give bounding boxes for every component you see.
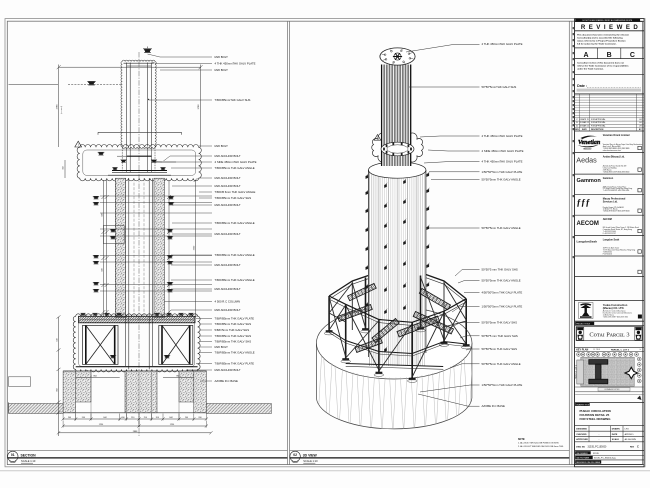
svg-text:2. ALL FILLET WELDED SHOULD BE: 2. ALL FILLET WELDED SHOULD BE 6mm THK. (518, 445, 564, 448)
svg-text:M20 ANCHOR BOLT: M20 ANCHOR BOLT (215, 368, 241, 372)
svg-text:250: 250 (131, 417, 134, 419)
svg-text:350: 350 (63, 166, 65, 169)
svg-text:A: A (583, 52, 588, 59)
svg-text:1/50*50*5mm THK GALV PLATE: 1/50*50*5mm THK GALV PLATE (482, 383, 523, 387)
svg-text:DESCRIPTION: DESCRIPTION (591, 129, 604, 131)
svg-text:T +852 3922 9000: T +852 3922 9000 (603, 231, 616, 233)
svg-text:200: 200 (198, 417, 201, 419)
svg-text:T/B/F/B5mm THK GALV SHS: T/B/F/B5mm THK GALV SHS (215, 322, 252, 326)
svg-text:T/B/F/B5mm THK GALV SHS: T/B/F/B5mm THK GALV SHS (215, 196, 252, 200)
svg-text:4 SIDE 450mmTHK GALV PLATE: 4 SIDE 450mmTHK GALV PLATE (482, 149, 524, 153)
svg-text:26 MAR 15: 26 MAR 15 (580, 121, 589, 124)
svg-text:MACAO: MACAO (584, 147, 592, 150)
svg-text:21/F, Macau: 21/F, Macau (603, 170, 612, 172)
svg-text:relieve the Trade Contracto: relieve the Trade Contractor of its resp… (577, 65, 629, 68)
svg-text:AECOM: AECOM (577, 221, 599, 227)
svg-text:530: 530 (56, 338, 58, 341)
svg-text:M20 ANCHOR BOLT: M20 ANCHOR BOLT (215, 154, 241, 158)
svg-text:4 SIDE 450mmTHK GALV PLATE: 4 SIDE 450mmTHK GALV PLATE (215, 160, 257, 164)
svg-text:1786: 1786 (198, 104, 200, 110)
svg-text:T 2830 3500: T 2830 3500 (603, 251, 612, 253)
svg-text:18 MAR 15: 18 MAR 15 (580, 124, 589, 127)
svg-text:Date :: Date : (577, 84, 587, 88)
svg-text:F 2576 0416: F 2576 0416 (603, 253, 612, 255)
svg-text:4 THK 450mmTHK GALV PLATE: 4 THK 450mmTHK GALV PLATE (215, 62, 256, 66)
svg-text:CAD NUMBER: CAD NUMBER (576, 452, 588, 455)
svg-text:5/B/F/5mm THK GALV SHS: 5/B/F/5mm THK GALV SHS (215, 328, 250, 332)
svg-text:3D VIEW: 3D VIEW (303, 454, 318, 458)
svg-text:T/B/F/B6mm THK GALV ANGLE: T/B/F/B6mm THK GALV ANGLE (215, 278, 255, 282)
svg-text:50*50*5mmTHK GALV SHS: 50*50*5mmTHK GALV SHS (482, 85, 517, 89)
svg-text:T/B/F/B5mm THK GALV SHS: T/B/F/B5mm THK GALV SHS (215, 340, 252, 344)
svg-text:Gammon: Gammon (603, 177, 614, 180)
svg-text:DESIGNED: DESIGNED (576, 429, 587, 431)
svg-text:M20 BOLT: M20 BOLT (215, 345, 229, 349)
svg-text:250: 250 (144, 417, 147, 419)
svg-text:FOR APPROVAL: FOR APPROVAL (591, 121, 605, 124)
svg-text:01: 01 (11, 453, 15, 457)
svg-text:C: C (637, 445, 639, 449)
svg-text:LangdonSeah: LangdonSeah (577, 240, 598, 244)
svg-text:50*50*5mm THK GALV ANGLE: 50*50*5mm THK GALV ANGLE (482, 178, 521, 182)
svg-text:T/B/F/B5mm THK GALV ANGLE: T/B/F/B5mm THK GALV ANGLE (215, 351, 255, 355)
svg-text:4 THK 450mmTHK GALV PLATE: 4 THK 450mmTHK GALV PLATE (482, 160, 523, 164)
svg-text:50*50*5mm THK GALV SHS: 50*50*5mm THK GALV SHS (482, 347, 518, 351)
svg-text:DRAWING TITLE: DRAWING TITLE (576, 404, 590, 407)
svg-text:T/B/F/B 6mm THK GALV ANGLE: T/B/F/B 6mm THK GALV ANGLE (215, 190, 256, 194)
svg-text:status referred to in Proj: status referred to in Project Procedure … (577, 39, 626, 42)
svg-text:M20 ANCHOR BOLT: M20 ANCHOR BOLT (215, 184, 241, 188)
svg-text:CAD FILE NAME: CAD FILE NAME (576, 457, 590, 460)
svg-text:T/B/F/B5mm THK GALV ANGLE: T/B/F/B5mm THK GALV ANGLE (215, 166, 255, 170)
svg-text:AZOBE R.C BASE: AZOBE R.C BASE (215, 379, 238, 383)
svg-text:DRAWN: DRAWN (612, 428, 620, 431)
svg-text:REV: REV (630, 447, 635, 449)
svg-text:T/B/F/B6mm THK GALV ANGLE: T/B/F/B6mm THK GALV ANGLE (215, 221, 255, 225)
svg-text:SCALE 1:10: SCALE 1:10 (21, 459, 36, 463)
svg-text:SCALE 1:10: SCALE 1:10 (303, 459, 318, 463)
svg-text:LHO: LHO (625, 429, 630, 431)
svg-text:50*50*5mm THK GALV ANGLE: 50*50*5mm THK GALV ANGLE (482, 362, 521, 366)
svg-text:T/B/F/B6mm THK GALV ANGLE: T/B/F/B6mm THK GALV ANGLE (215, 253, 255, 257)
svg-text:4 THK 450mmTHK GALV PLATE: 4 THK 450mmTHK GALV PLATE (482, 134, 523, 138)
svg-text:Services Ltd.: Services Ltd. (603, 201, 618, 204)
svg-text:DATE: DATE (582, 128, 588, 131)
svg-text:FOR APPROVAL: FOR APPROVAL (591, 124, 605, 127)
svg-text:under the Trade Contract.: under the Trade Contract. (577, 68, 604, 71)
svg-text:1/50*50*5mm THK GALV PLATE: 1/50*50*5mm THK GALV PLATE (482, 170, 523, 174)
svg-text:M20 ANCHOR BOLT: M20 ANCHOR BOLT (215, 287, 241, 291)
svg-text:T/B/F/B5mm THK GALV SHS: T/B/F/B5mm THK GALV SHS (215, 334, 252, 338)
svg-text:M20 ANCHOR BOLT: M20 ANCHOR BOLT (215, 308, 241, 312)
svg-text:M20 ANCHOR BOLT: M20 ANCHOR BOLT (215, 203, 241, 207)
svg-text:SCALE: SCALE (612, 438, 620, 441)
svg-text:1:1 T.B.B: 1:1 T.B.B (593, 349, 601, 351)
svg-text:Consultant review of this: Consultant review of this document does … (577, 62, 624, 65)
svg-text:244: 244 (185, 417, 188, 419)
svg-text:50*50*5 mm THK GALV SHS: 50*50*5 mm THK GALV SHS (482, 268, 518, 272)
svg-text:844: 844 (169, 417, 172, 419)
svg-text:R E V I E W E D: R E V I E W E D (581, 24, 639, 31)
svg-text:T/B/F/B5mm THK GALV PLATE: T/B/F/B5mm THK GALV PLATE (215, 317, 255, 321)
svg-text:09 APR 15: 09 APR 15 (580, 118, 589, 121)
svg-text:31535: 31535 (593, 453, 600, 455)
svg-text:M20 BOLT: M20 BOLT (215, 68, 229, 72)
svg-text:T (853) 2878 6625 F (853) 287: T (853) 2878 6625 F (853) 2878 6634 (603, 211, 630, 213)
svg-text:C: C (630, 52, 635, 59)
svg-text:AZOBE R.C BASE: AZOBE R.C BASE (482, 404, 505, 408)
svg-text:CHECKED: CHECKED (576, 434, 587, 436)
svg-text:NOTE:: NOTE: (518, 439, 525, 441)
svg-text:Langdon Seah: Langdon Seah (603, 238, 620, 241)
svg-text:200: 200 (156, 417, 159, 419)
svg-text:This document has been reviewe: This document has been reviewed by the r… (577, 33, 629, 36)
svg-text:AS SHOWN: AS SHOWN (625, 438, 637, 441)
svg-text:979 King’s Road, Quarry Bay, H: 979 King’s Road, Quarry Bay, Hong Kong (603, 188, 632, 190)
svg-text:B: B (607, 52, 612, 59)
svg-text:500: 500 (102, 268, 104, 271)
svg-text:28/F, Devon House, Taikoo Plac: 28/F, Devon House, Taikoo Place (603, 186, 627, 188)
svg-text:200: 200 (68, 417, 71, 419)
svg-text:4 500 R.C COLUMN: 4 500 R.C COLUMN (215, 300, 241, 304)
svg-text:Aedas: Aedas (576, 155, 597, 164)
svg-text:Cᴏᴛᴀɪ Pᴀʀᴄᴇʟ 3: Cᴏᴛᴀɪ Pᴀʀᴄᴇʟ 3 (589, 332, 629, 339)
svg-text:PARCEL 1, LOT 1: PARCEL 1, LOT 1 (574, 365, 577, 379)
svg-text:PROJECT TITLE: PROJECT TITLE (576, 323, 591, 325)
svg-text:Consultant(s) and is accord: Consultant(s) and is accorded the follow… (577, 36, 623, 39)
svg-text:1. ALL BOLT SHOULD BE FIXING O: 1. ALL BOLT SHOULD BE FIXING ON SITE. (518, 442, 560, 445)
svg-text:T (853) 2875 3339 F (853) 287: T (853) 2875 3339 F (853) 2875 3330 (603, 316, 628, 318)
svg-text:FOR STEEL DRAWING: FOR STEEL DRAWING (580, 417, 612, 421)
svg-text:244: 244 (82, 417, 85, 419)
svg-text:844: 844 (103, 417, 106, 419)
svg-text:China Law Building: China Law Building (603, 168, 617, 170)
svg-text:200: 200 (121, 417, 124, 419)
svg-text:31535_PC_B5000: 31535_PC_B5000 (588, 447, 607, 449)
svg-text:SECTION: SECTION (21, 454, 37, 458)
svg-text:M20 BOLT: M20 BOLT (215, 55, 229, 59)
svg-text:1786: 1786 (57, 104, 59, 110)
svg-text:M20 ANCHOR BOLT: M20 ANCHOR BOLT (215, 232, 241, 236)
svg-text:Aedas (Macau) Ltd.: Aedas (Macau) Ltd. (603, 155, 625, 158)
svg-text:T (853) 2882 8888 F (853) 2: T (853) 2882 8888 F (853) 2882 8889 (603, 148, 630, 150)
svg-text:4/50*50*5mm THK GALV PLATE: 4/50*50*5mm THK GALV PLATE (482, 290, 523, 294)
svg-text:DATE: DATE (612, 433, 618, 436)
svg-text:31535_PC_B5000.dwg: 31535_PC_B5000.dwg (594, 458, 616, 460)
svg-text:50*50*5mm THK GALV ANGLE: 50*50*5mm THK GALV ANGLE (482, 226, 521, 230)
svg-text:DWG NO: DWG NO (576, 447, 585, 449)
svg-text:T/B/F/B5mmTHK GALV SHS: T/B/F/B5mmTHK GALV SHS (215, 98, 251, 102)
svg-text:PARCEL 1, LOT 2: PARCEL 1, LOT 2 (611, 348, 630, 351)
svg-text:5.4 for action by the Tra: 5.4 for action by the Trade Contractor. (577, 42, 617, 45)
svg-text:KEY PLAN: KEY PLAN (576, 348, 588, 351)
svg-text:T (853) 2833 1133 F (853) 283: T (853) 2833 1133 F (853) 2833 3000 (603, 171, 630, 173)
svg-text:ƒƒƒ: ƒƒƒ (577, 198, 591, 208)
svg-text:REFERENCE CAD FILE NAME: REFERENCE CAD FILE NAME (576, 461, 601, 464)
svg-text:50*50*5mm THK GALV ANGLE: 50*50*5mm THK GALV ANGLE (482, 278, 521, 282)
svg-text:T/B/F/B5mm THK GALV PLATE: T/B/F/B5mm THK GALV PLATE (215, 362, 255, 366)
svg-text:APR2015: APR2015 (625, 433, 635, 436)
svg-text:T +852 2516 8823 F +852 2516: T +852 2516 8823 F +852 2516 6260 (603, 190, 629, 192)
svg-text:FOR APPROVAL: FOR APPROVAL (591, 118, 605, 121)
svg-text:4 THK 450mmTHK GALV PLATE: 4 THK 450mmTHK GALV PLATE (482, 42, 523, 46)
svg-text:Gammon: Gammon (577, 178, 602, 184)
svg-text:(Macau) CO. LTD.: (Macau) CO. LTD. (603, 306, 625, 310)
svg-text:M20 BOLT: M20 BOLT (215, 144, 229, 148)
svg-text:500: 500 (102, 213, 104, 216)
svg-text:M20 ANCHOR BOLT: M20 ANCHOR BOLT (215, 263, 241, 267)
svg-text:50*50*5mm THK GALV SHS: 50*50*5mm THK GALV SHS (482, 321, 518, 325)
svg-text:F +852 3922 9797: F +852 3922 9797 (603, 233, 616, 235)
svg-text:APPROVED: APPROVED (576, 438, 588, 441)
svg-text:1/50*50*5mm THK GALV PLATE: 1/50*50*5mm THK GALV PLATE (482, 305, 523, 309)
svg-text:M20 ANCHOR BOLT: M20 ANCHOR BOLT (215, 176, 241, 180)
svg-text:Venetian Orient Limited: Venetian Orient Limited (603, 134, 630, 137)
svg-text:!: ! (78, 143, 79, 147)
svg-text:950: 950 (56, 388, 58, 391)
svg-text:02: 02 (293, 453, 297, 457)
svg-text:AECOM: AECOM (603, 218, 612, 221)
svg-text:50*50*5 mm THK GALV SHS: 50*50*5 mm THK GALV SHS (482, 334, 518, 338)
svg-text:(u-u s.s.l): (u-u s.s.l) (61, 106, 63, 114)
